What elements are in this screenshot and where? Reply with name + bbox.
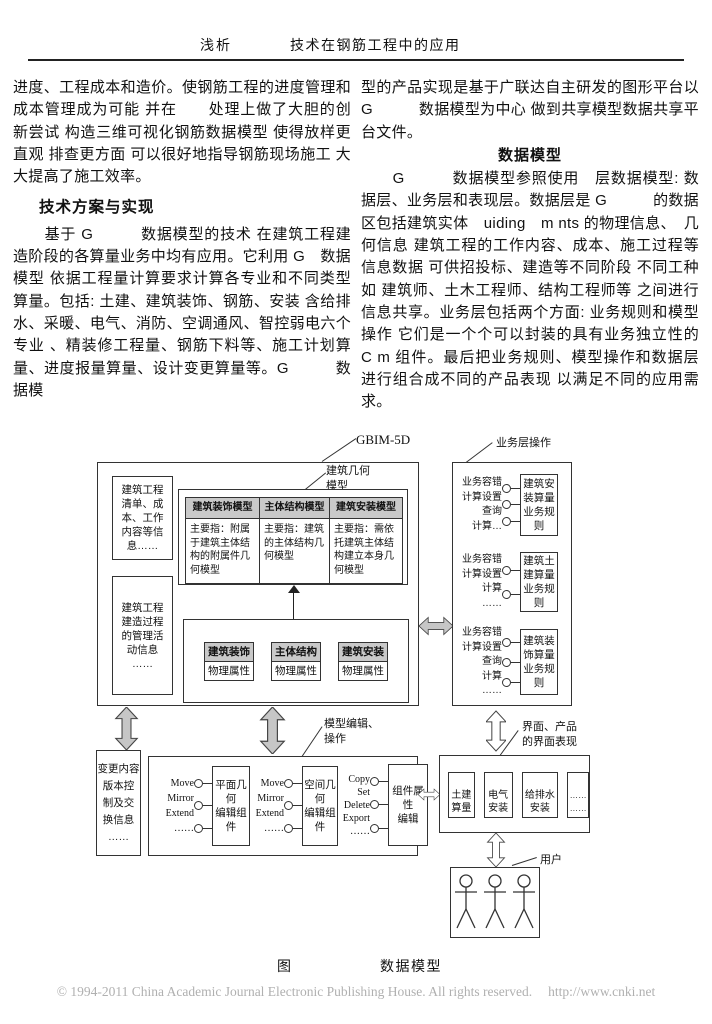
physical-item-title: 建筑安装 [338, 642, 388, 661]
editor-ops-text: Move Mirror Extend …… [244, 776, 284, 836]
project-info-box: 建筑工程 清单、成 本、工作 内容等信 息…… [112, 476, 173, 560]
ui-item-plumbing-install: 给排水 安装 [522, 772, 559, 818]
person-icon [512, 873, 536, 931]
connector-circles [502, 552, 520, 612]
model-editor-label: 模型编辑、 操作 [324, 717, 379, 747]
ui-item-electric-install: 电气 安装 [484, 772, 513, 818]
editor-ops-text: Move Mirror Extend …… [154, 776, 194, 836]
up-arrow-icon [288, 585, 300, 593]
port-circle-icon [194, 824, 203, 833]
table-cell-structure-model: 主要指：建筑的主体结构几何模型 [260, 519, 330, 584]
business-group-decoration: 业务容错 计算设置 查询 计算 …… 建筑装 饰算量 业务规 则 [456, 626, 558, 699]
port-circle-icon [502, 638, 511, 647]
table-cell-installation-model: 主要指：需依托建筑主体结构建立本身几何模型 [330, 519, 403, 584]
business-rule-box: 建筑土 建算量 业务规 则 [520, 552, 558, 612]
copyright-text: © 1994-2011 China Academic Journal Elect… [57, 984, 532, 999]
table-header-structure-model: 主体结构模型 [260, 498, 330, 519]
physical-item-decoration: 建筑装饰 物理属性 [204, 642, 254, 702]
right-column: 型的产品实现是基于广联达自主研发的图形平台以 G 数据模型为中心 做到共享模型数… [361, 77, 699, 413]
ui-representation-box: 土建 算量 电气 安装 给排水 安装 …… …… [439, 755, 590, 833]
person-icon [454, 873, 478, 931]
users-label: 用户 [540, 853, 562, 868]
port-circle-icon [370, 800, 379, 809]
header-rule [28, 59, 684, 61]
port-circle-icon [502, 500, 511, 509]
port-circle-icon [502, 658, 511, 667]
port-circle-icon [370, 777, 379, 786]
gbim-architecture-diagram: GBIM-5D 建筑工程 清单、成 本、工作 内容等信 息…… 建筑工程 建造过… [0, 430, 712, 960]
ui-representation-label: 界面、产品 的界面表现 [522, 720, 577, 750]
connector-circles [284, 766, 302, 846]
connector-circles [370, 764, 388, 846]
double-arrow-horizontal-icon [418, 786, 440, 803]
business-lead-line [466, 442, 493, 463]
port-circle-icon [502, 484, 511, 493]
port-circle-icon [502, 590, 511, 599]
section-heading-technical-plan: 技术方案与实现 [39, 197, 351, 219]
port-circle-icon [194, 801, 203, 810]
port-circle-icon [502, 566, 511, 575]
port-circle-icon [284, 801, 293, 810]
gbim-5d-label: GBIM-5D [356, 432, 410, 447]
physical-item-installation: 建筑安装 物理属性 [338, 642, 388, 702]
connector-circles [194, 766, 212, 846]
physical-attributes-box: 建筑装饰 物理属性 主体结构 物理属性 建筑安装 物理属性 [183, 619, 409, 703]
geometry-model-box: 建筑装饰模型 主体结构模型 建筑安装模型 主要指：附属于建筑主体结构的附属件几何… [178, 489, 408, 585]
port-circle-icon [502, 517, 511, 526]
business-rule-box: 建筑安 装算量 业务规 则 [520, 474, 558, 536]
figure-caption-prefix: 图 [277, 956, 291, 976]
left-paragraph-1: 进度、工程成本和造价。使钢筋工程的进度管理和成本管理成为可能 并在 处理上做了大… [13, 77, 351, 188]
page-header-title: 技术在钢筋工程中的应用 [290, 35, 461, 55]
business-layer-label: 业务层操作 [496, 436, 551, 451]
physical-item-attr: 物理属性 [204, 661, 254, 681]
double-arrow-vertical-icon [486, 707, 506, 755]
figure-caption-title: 数据模型 [380, 956, 442, 976]
editor-group-space: Move Mirror Extend …… 空间几 何 编辑组 件 [244, 766, 338, 846]
double-arrow-vertical-icon [486, 833, 506, 867]
port-circle-icon [284, 779, 293, 788]
double-arrow-vertical-icon [113, 707, 140, 750]
table-header-installation-model: 建筑安装模型 [330, 498, 403, 519]
port-circle-icon [284, 824, 293, 833]
person-icon [483, 873, 507, 931]
connector-circles [502, 626, 520, 699]
right-paragraph-2: G 数据模型参照使用 层数据模型: 数据层、业务层和表现层。数据层是 G 的数据… [361, 168, 699, 413]
business-group-installation: 业务容错 计算设置 查询 计算… 建筑安 装算量 业务规 则 [456, 474, 558, 536]
article-columns: 进度、工程成本和造价。使钢筋工程的进度管理和成本管理成为可能 并在 处理上做了大… [13, 77, 699, 413]
management-info-box: 建筑工程 建造过程 的管理活 动信息 …… [112, 576, 173, 695]
up-arrow-line [293, 592, 294, 619]
gbim-lead-line [322, 438, 357, 462]
double-arrow-horizontal-icon [419, 614, 453, 638]
editor-group-plane: Move Mirror Extend …… 平面几 何 编辑组 件 [154, 766, 250, 846]
table-header-decoration-model: 建筑装饰模型 [186, 498, 260, 519]
port-circle-icon [194, 779, 203, 788]
ui-item-civil-quantity: 土建 算量 [448, 772, 475, 818]
editor-component-box: 组件属 性 编辑 [388, 764, 428, 846]
cnki-url: http://www.cnki.net [548, 984, 655, 999]
version-control-box: 变更内容 版本控 制及交 换信息 …… [96, 750, 141, 856]
business-rule-box: 建筑装 饰算量 业务规 则 [520, 629, 558, 695]
users-lead-line [512, 857, 537, 866]
business-ops-text: 业务容错 计算设置 查询 计算 …… [456, 626, 502, 699]
table-cell-decoration-model: 主要指：附属于建筑主体结构的附属件几何模型 [186, 519, 260, 584]
connector-circles [502, 474, 520, 536]
business-ops-text: 业务容错 计算设置 计算 …… [456, 553, 502, 611]
port-circle-icon [502, 678, 511, 687]
scanned-paper-page: 浅析 技术在钢筋工程中的应用 进度、工程成本和造价。使钢筋工程的进度管理和成本管… [0, 0, 712, 1024]
ui-item-more: …… …… [567, 772, 589, 818]
physical-item-structure: 主体结构 物理属性 [271, 642, 321, 702]
right-paragraph-1: 型的产品实现是基于广联达自主研发的图形平台以 G 数据模型为中心 做到共享模型数… [361, 77, 699, 144]
users-box [450, 867, 540, 938]
double-arrow-vertical-icon [259, 707, 286, 754]
physical-item-title: 建筑装饰 [204, 642, 254, 661]
left-column: 进度、工程成本和造价。使钢筋工程的进度管理和成本管理成为可能 并在 处理上做了大… [13, 77, 351, 413]
physical-item-attr: 物理属性 [271, 661, 321, 681]
business-ops-text: 业务容错 计算设置 查询 计算… [456, 476, 502, 534]
physical-item-title: 主体结构 [271, 642, 321, 661]
editor-lead-line [302, 726, 323, 756]
page-header-topic: 浅析 [200, 35, 232, 55]
business-group-civil: 业务容错 计算设置 计算 …… 建筑土 建算量 业务规 则 [456, 552, 558, 612]
section-heading-data-model: 数据模型 [361, 145, 699, 167]
left-paragraph-2: 基于 G 数据模型的技术 在建筑工程建造阶段的各算量业务中均有应用。它利用 G … [13, 224, 351, 402]
editor-ops-text: Copy Set Delete Export …… [330, 773, 370, 838]
copyright-footer: © 1994-2011 China Academic Journal Elect… [0, 984, 712, 1000]
editor-group-component-attr: Copy Set Delete Export …… 组件属 性 编辑 [330, 764, 428, 846]
port-circle-icon [370, 824, 379, 833]
physical-item-attr: 物理属性 [338, 661, 388, 681]
geometry-model-table: 建筑装饰模型 主体结构模型 建筑安装模型 主要指：附属于建筑主体结构的附属件几何… [185, 497, 403, 584]
